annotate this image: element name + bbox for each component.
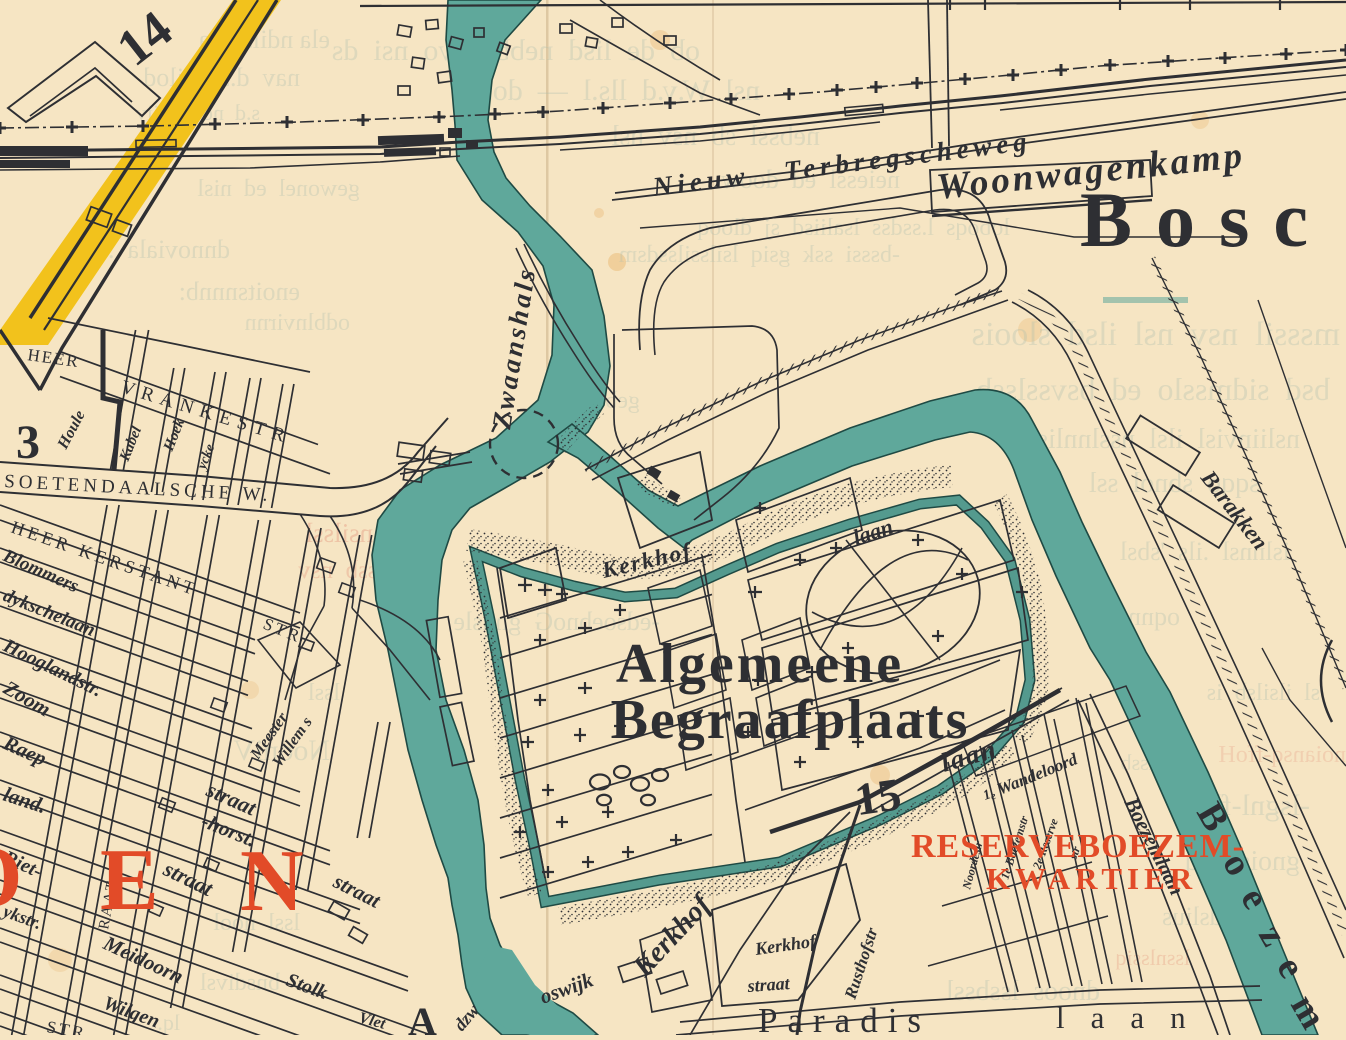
svg-text:Paradis: Paradis [758, 1001, 931, 1035]
svg-text:N: N [240, 833, 304, 930]
svg-text:A: A [408, 999, 437, 1035]
svg-text:E: E [100, 832, 159, 929]
svg-text:msssil nsv nsl ilsd sloois: msssil nsv nsl ilsd sloois [972, 316, 1340, 353]
svg-text:straat: straat [746, 973, 791, 996]
svg-text:RESERVEBOEZEM-: RESERVEBOEZEM- [911, 828, 1245, 865]
svg-text:O: O [0, 829, 22, 926]
svg-text:lssl: lssl [308, 680, 340, 706]
svg-text:laan: laan [1056, 1000, 1212, 1035]
svg-text:3: 3 [16, 416, 40, 469]
svg-text:enoitsnnnb:: enoitsnnnb: [179, 277, 300, 306]
svg-text:Bosc: Bosc [1080, 176, 1332, 263]
svg-text:KWARTIER: KWARTIER [986, 861, 1197, 896]
svg-text:noiansq-ffoH: noiansq-ffoH [1218, 742, 1346, 768]
svg-text:odblnvirnn: odblnvirnn [245, 310, 350, 336]
svg-text:nsl W.v.d lls.l — doss: nsl W.v.d lls.l — doss [469, 74, 760, 107]
svg-text:bsd sidmsslo ed bsvsslssb: bsd sidmsslo ed bsvsslssb [976, 371, 1330, 407]
svg-text:bnsdivsl: bnsdivsl [200, 970, 280, 996]
svg-text:Begraafplaats: Begraafplaats [611, 689, 970, 751]
svg-text:sl ilsilsb is: sl ilsilsb is [1207, 680, 1320, 706]
svg-text:Algemeene: Algemeene [616, 633, 904, 695]
svg-text:nsliinvisl ilsl nsslnnlisl: nsliinvisl ilsl nsslnnlisl [1029, 424, 1300, 455]
svg-text:gewonel ed nisl: gewonel ed nisl [197, 176, 360, 202]
